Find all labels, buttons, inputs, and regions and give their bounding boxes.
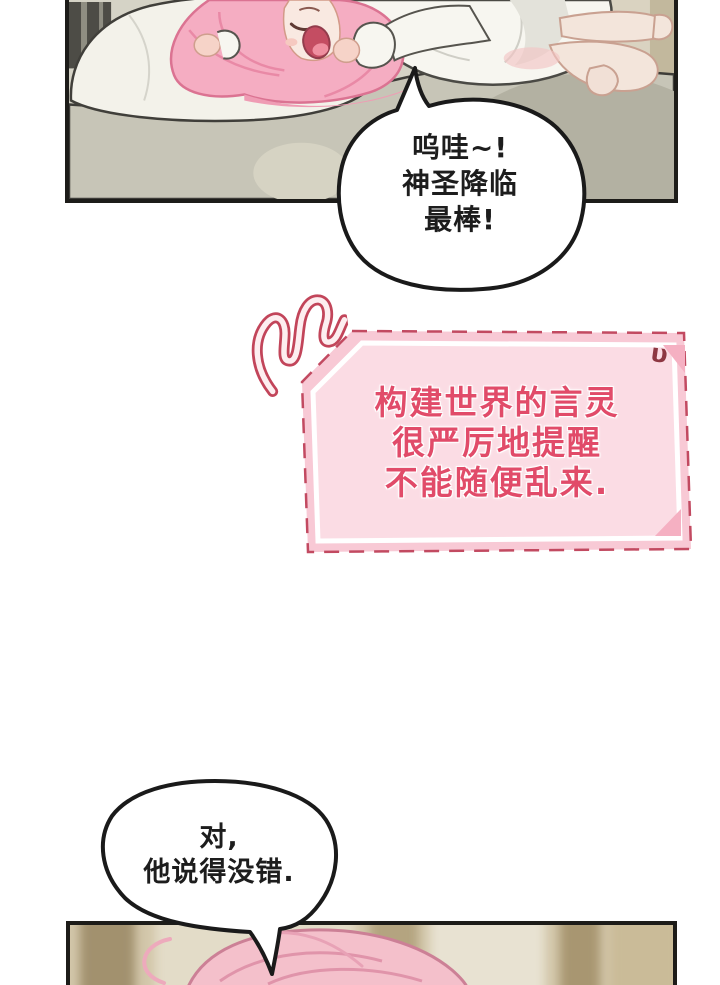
foot-right <box>653 15 672 40</box>
speech-line: 最棒! <box>424 202 496 238</box>
speech-line: 神圣降临 <box>402 166 518 202</box>
leg-upper <box>560 12 667 42</box>
speech-line: 呜哇~! <box>412 130 508 166</box>
system-line: 不能随便乱来. <box>295 463 699 503</box>
system-line: 很严厉地提醒 <box>295 423 699 463</box>
speech-bubble-top: 呜哇~! 神圣降临 最棒! <box>325 58 595 298</box>
speech-bubble-bottom-text: 对, 他说得没错. <box>93 775 345 935</box>
blush <box>285 38 297 46</box>
comic-page: 呜哇~! 神圣降临 最棒! 构建世界的言灵 很严厉地提醒 不能随便乱来. υ 对… <box>0 0 720 985</box>
speech-line: 对, <box>199 820 238 855</box>
left-fist <box>194 34 220 56</box>
system-line: 构建世界的言灵 <box>295 383 699 423</box>
speech-line: 他说得没错. <box>143 855 294 890</box>
system-message-box: 构建世界的言灵 很严厉地提醒 不能随便乱来. υ <box>295 325 699 557</box>
speech-bubble-bottom: 对, 他说得没错. <box>93 775 345 980</box>
system-message-text: 构建世界的言灵 很严厉地提醒 不能随便乱来. <box>295 383 699 503</box>
speech-bubble-top-text: 呜哇~! 神圣降临 最棒! <box>325 58 595 304</box>
